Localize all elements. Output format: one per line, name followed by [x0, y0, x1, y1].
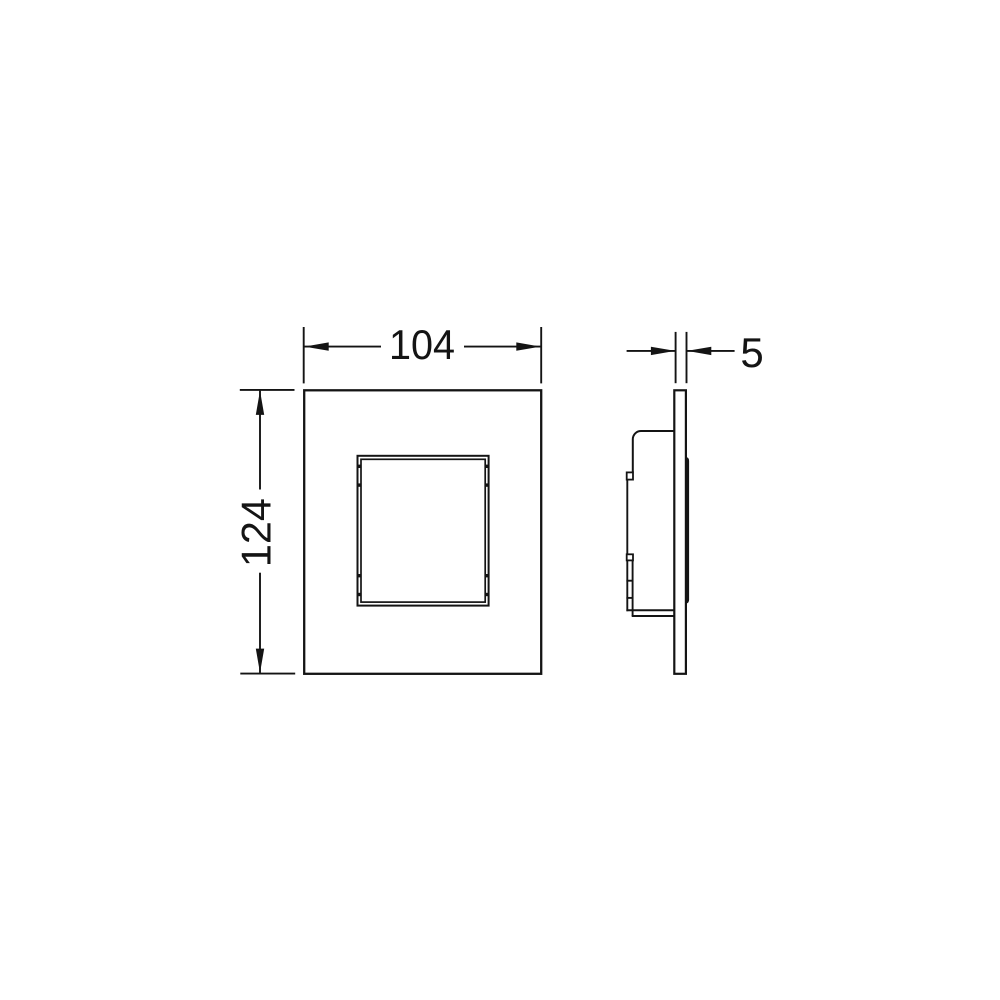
svg-text:5: 5	[740, 329, 763, 376]
svg-text:124: 124	[233, 498, 280, 567]
svg-text:104: 104	[389, 321, 455, 368]
